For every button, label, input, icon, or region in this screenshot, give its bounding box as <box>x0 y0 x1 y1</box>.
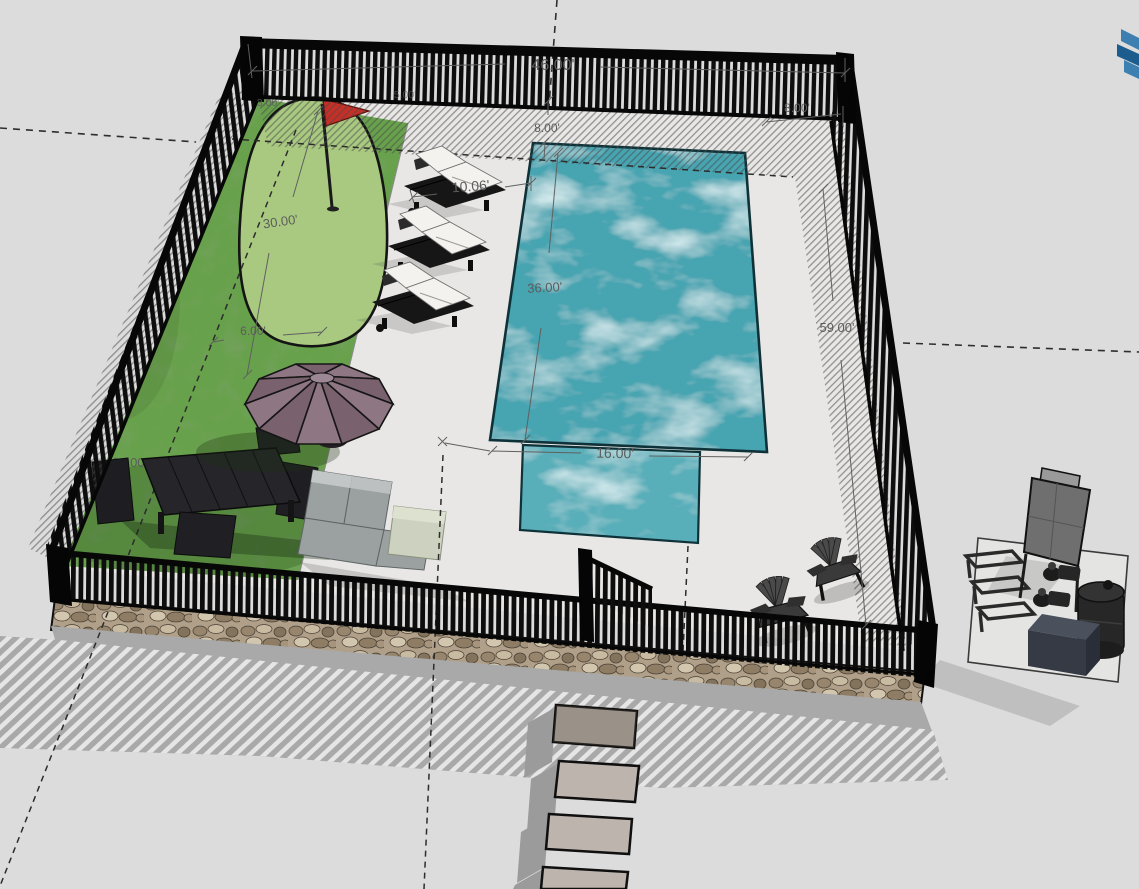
dim-green-offset-left[interactable]: 3.00' <box>257 97 279 109</box>
dim-setback-right[interactable]: 8.00' <box>784 101 810 115</box>
dim-pool-width[interactable]: 16.00' <box>596 445 634 462</box>
paver-shade <box>553 705 637 748</box>
dim-setback-left[interactable]: 8.00' <box>534 121 560 135</box>
dining-chair[interactable] <box>174 512 236 558</box>
umbrella-cap <box>310 373 334 383</box>
dim-green-offset-right[interactable]: 5.00' <box>394 89 416 101</box>
paver[interactable] <box>555 761 639 802</box>
pool-water[interactable] <box>490 143 767 452</box>
dim-overall-depth[interactable]: 59.00' <box>819 320 854 335</box>
dim-pool-length[interactable]: 36.00' <box>527 279 563 296</box>
dim-overall-width[interactable]: 46.00' <box>531 57 574 74</box>
paver[interactable] <box>541 867 628 889</box>
sketchup-viewport[interactable]: 24.00' <box>0 0 1139 889</box>
heater-box[interactable] <box>1028 614 1100 676</box>
dim-deck-width[interactable]: 10.06' <box>451 177 490 196</box>
golf-hole <box>327 207 339 212</box>
dim-green-width[interactable]: 6.00' <box>240 324 266 338</box>
paver[interactable] <box>546 814 632 854</box>
